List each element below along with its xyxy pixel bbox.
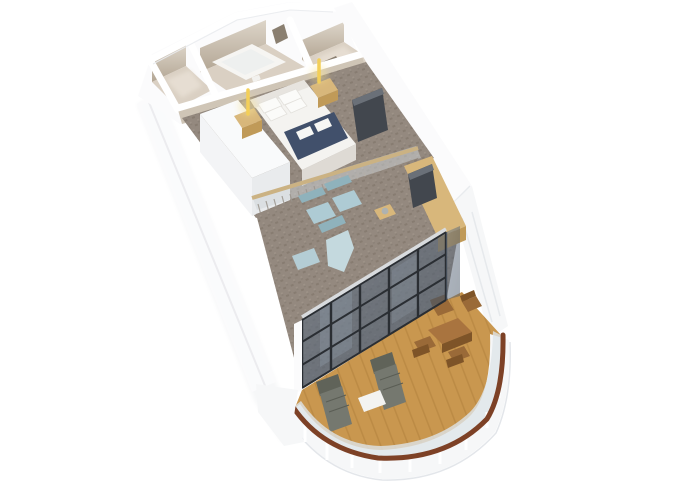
stool-item — [382, 208, 389, 215]
suite-floorplan-render — [0, 0, 680, 486]
render-canvas — [0, 0, 680, 486]
glass-return-right — [446, 226, 460, 300]
facade-left-jamb — [294, 320, 302, 394]
